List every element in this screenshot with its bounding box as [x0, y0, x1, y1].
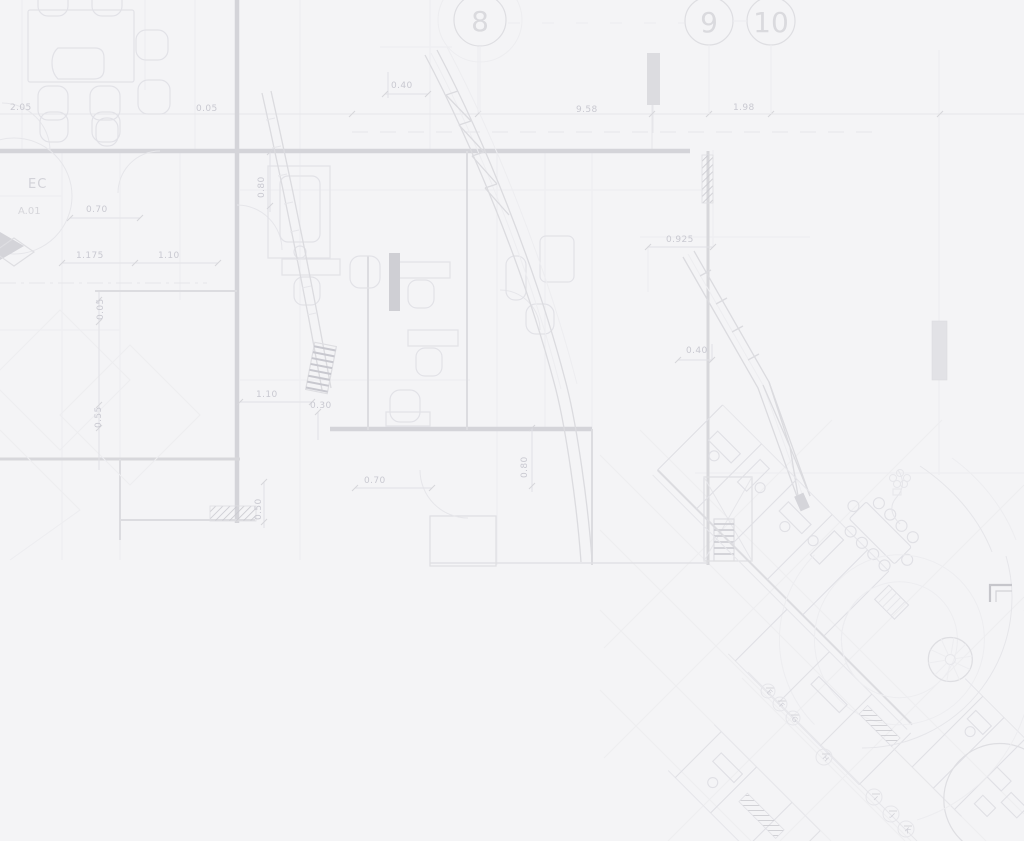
dimension-label: 0.55 — [94, 406, 104, 428]
grid-number: 10 — [753, 6, 789, 39]
grid-bubble-diag: K — [898, 821, 914, 837]
dimension-label: 0.05 — [196, 104, 218, 114]
diagonal-site-grid — [600, 420, 1024, 841]
rotated-plan-wing — [513, 372, 1024, 841]
dimension-labels: 0.40 2.05 0.05 9.58 1.98 0.80 0.70 1.175… — [10, 81, 755, 520]
section-marker-code: EC — [28, 177, 47, 192]
furniture-top-left — [28, 0, 170, 146]
dimension-label: 0.30 — [310, 401, 332, 411]
dimension-label: 0.70 — [364, 476, 386, 486]
diamond-paving — [0, 310, 200, 560]
blueprint-canvas: 0.40 2.05 0.05 9.58 1.98 0.80 0.70 1.175… — [0, 0, 1024, 841]
grid-bubble-diag: F — [773, 697, 787, 711]
end-rotunda — [921, 720, 1024, 841]
column-fill-top — [647, 53, 660, 105]
tree-symbol — [890, 470, 911, 525]
dimension-label: 2.05 — [10, 103, 32, 113]
structural-columns — [389, 53, 947, 380]
floor-plan-walls — [0, 0, 713, 566]
section-marker-sheet: A.01 — [18, 206, 41, 217]
dimension-label: 9.58 — [576, 105, 598, 115]
meeting-table — [832, 484, 930, 582]
dimension-label: 0.925 — [666, 235, 694, 245]
grid-letter: H — [821, 754, 830, 763]
grid-bubble-8: 8 — [380, 0, 522, 114]
dimension-label: 1.10 — [158, 251, 180, 261]
far-wing — [894, 679, 1024, 817]
grid-letter: J — [888, 811, 896, 819]
dimension-label: 1.10 — [256, 390, 278, 400]
atrium — [730, 495, 1020, 785]
section-marker: EC A.01 — [0, 138, 72, 266]
dimension-label: 0.80 — [520, 456, 530, 478]
dimension-label: 1.98 — [733, 103, 755, 113]
door-swings — [2, 103, 540, 518]
dimension-label: 0.70 — [86, 205, 108, 215]
column-fill-right — [932, 321, 947, 380]
grid-bubble-diag: E — [761, 684, 775, 698]
dimension-label: 1.175 — [76, 251, 104, 261]
curved-truss-ramp — [425, 47, 592, 562]
dimension-label: 0.80 — [257, 176, 267, 198]
grid-number: 9 — [700, 6, 718, 39]
dimension-label: 0.05 — [96, 298, 106, 320]
grid-bubble-diag: J — [883, 806, 899, 822]
dimension-label: 0.40 — [391, 81, 413, 91]
grid-bubble-diag: H — [816, 749, 832, 765]
dimension-label: 0.40 — [686, 346, 708, 356]
corner-bracket — [990, 585, 1012, 602]
grid-letter: I — [872, 795, 879, 802]
construction-grid — [0, 0, 1024, 565]
grid-bubble-10: 10 — [733, 0, 795, 114]
column-fill-mid — [389, 253, 400, 311]
grid-bubble-9: 9 — [685, 0, 733, 114]
dimension-label: 0.50 — [254, 498, 264, 520]
spiral-stair — [919, 628, 981, 690]
grid-number: 8 — [471, 5, 489, 38]
grid-bubbles-top: 8 9 10 — [380, 0, 795, 114]
grid-bubble-diag: I — [866, 789, 882, 805]
